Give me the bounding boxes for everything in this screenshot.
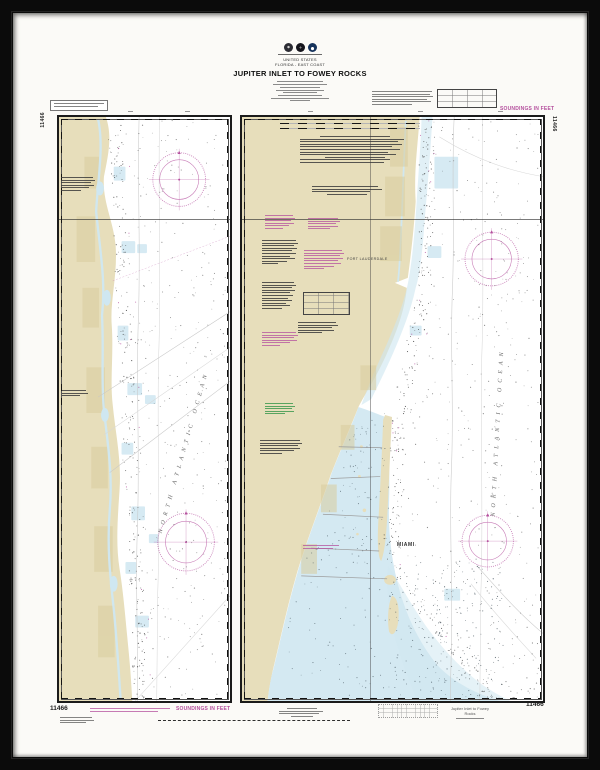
chart-panel-north: NORTH ATLANTIC OCEAN [57,115,232,703]
publisher-note-lines [279,708,324,718]
magenta-note-lines [262,332,298,348]
chart-map-north [59,117,230,701]
noaa-seal-icon [308,43,317,52]
chart-caption-title: Jupiter Inlet to Fowey Rocks [446,706,494,716]
magenta-note-lines [308,218,340,231]
magenta-note-lines [303,545,341,550]
chart-title: JUPITER INLET TO FOWEY ROCKS [0,69,600,78]
city-label-miami: MIAMI [397,542,415,548]
authorities-note-box [50,100,108,111]
projection-notes [260,81,340,101]
agency-seals [0,43,600,52]
chart-caption: Jupiter Inlet to Fowey Rocks [446,706,494,719]
seal-caption-line [278,54,322,55]
tide-table [303,292,350,315]
chart-number-side-left: 11466 [40,112,46,128]
chart-number-bottom-left: 11466 [50,705,68,712]
longitude-tick-label [418,111,423,112]
chart-notes-lines [260,440,302,456]
chart-notes-lines [312,186,382,196]
chart-number-side-right: 11466 [551,116,557,132]
scale-bar [280,123,420,124]
chart-title-block: UNITED STATES FLORIDA - EAST COAST JUPIT… [0,43,600,103]
caution-note-lines [372,91,434,107]
longitude-tick-label [498,111,503,112]
chart-notes-lines [262,240,298,266]
framed-nautical-chart: UNITED STATES FLORIDA - EAST COAST JUPIT… [0,0,600,770]
correction-grid [378,704,438,718]
chart-notes-lines [300,136,410,165]
logarithmic-speed-scale [158,720,350,721]
longitude-tick-label [185,111,190,112]
city-label-fort-lauderdale: FORT LAUDERDALE [347,257,388,261]
magenta-note-lines [304,250,344,271]
compass-rose [458,511,517,571]
green-note-lines [265,403,295,416]
compass-rose [461,228,522,290]
magenta-note-lines [265,215,295,231]
longitude-tick-label [128,111,133,112]
magenta-edition-lines [90,708,172,713]
soundings-note-bottom: SOUNDINGS IN FEET [176,706,230,712]
chart-number-bottom-right: 11466 [526,701,544,708]
chart-caption-subline [456,718,484,719]
survey-seal-icon [296,43,305,52]
print-note-lines [60,717,94,725]
region-line: FLORIDA - EAST COAST [0,62,600,67]
reference-table [437,89,497,108]
longitude-tick-label [308,111,313,112]
commerce-seal-icon [284,43,293,52]
compass-rose [149,149,210,211]
chart-notes-lines [298,322,338,335]
chart-notes-lines [262,282,296,311]
scale-bar [280,128,420,129]
land-note-lines [61,177,95,193]
soundings-note-top: SOUNDINGS IN FEET [500,106,554,112]
land-note-lines [62,390,88,398]
